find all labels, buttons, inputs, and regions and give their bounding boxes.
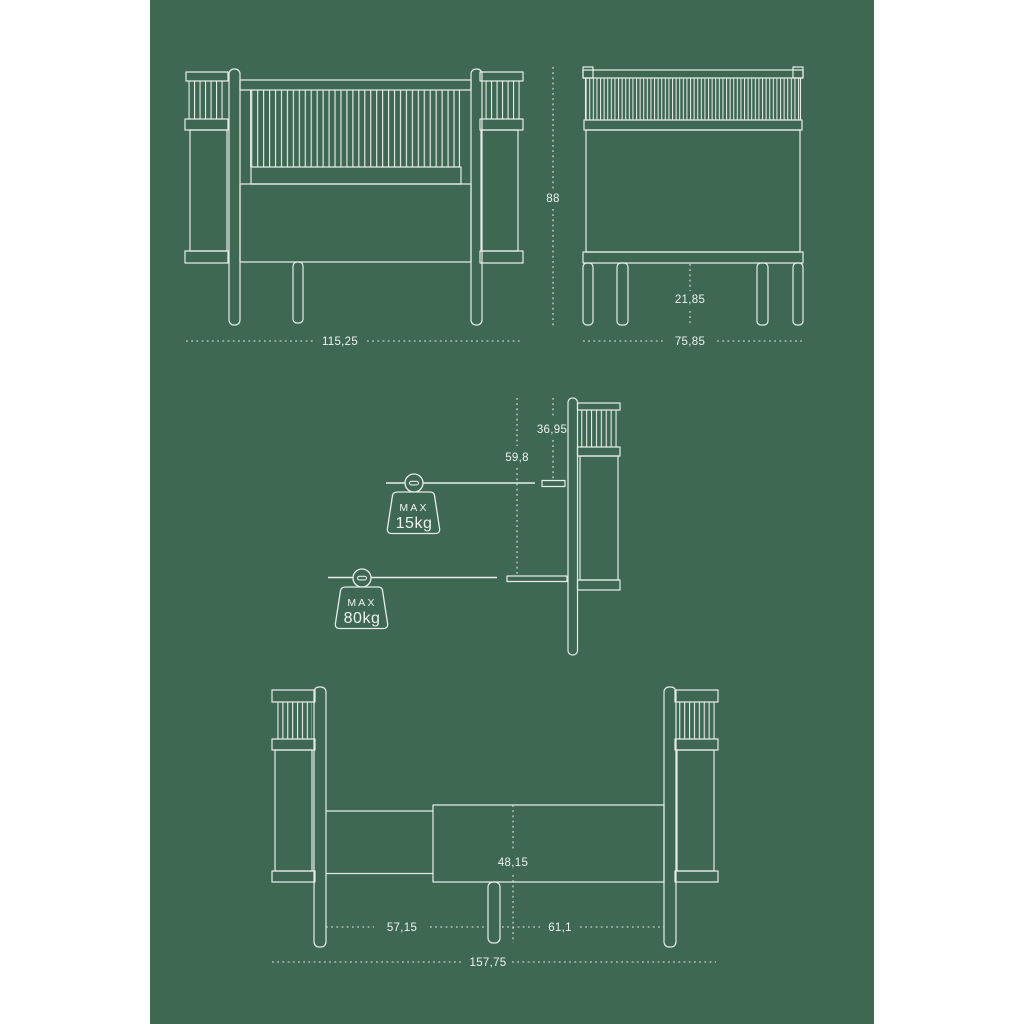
left-end-panel [185,72,228,263]
side-right-post-cap [793,67,803,78]
junior-total-width-label: 157,75 [470,957,507,969]
side-leg-1 [583,263,593,325]
end-panel-slats [677,702,715,739]
end-panel-slats [274,702,312,739]
weight-hook-ring [353,569,371,587]
profile-post [568,398,578,655]
junior-left-post [314,687,326,947]
underbed-clearance-label: 21,85 [675,294,705,306]
max-15kg-prefix: MAX [399,502,428,514]
junior-total-width-dimension: 157,75 [272,957,716,969]
dimension-poster: 115,25 88 21,85 75,85 [150,0,874,1024]
junior-right-section-label: 61,1 [548,922,572,934]
overall-height-label: 88 [546,193,559,205]
side-leg-3 [757,263,768,325]
junior-left-section-dimension: 57,15 [326,922,486,934]
left-end-panel [272,690,315,882]
side-panel [586,130,800,252]
side-width-dimension: 75,85 [583,336,803,348]
front-right-post [471,69,482,325]
max-80kg-prefix: MAX [347,597,376,609]
junior-bed-front-view [272,687,718,947]
drop-side-railing [240,80,471,184]
front-width-dimension: 115,25 [186,336,522,348]
side-left-post-cap [583,67,593,78]
junior-right-section-dimension: 61,1 [502,922,664,934]
side-top-rail [583,70,803,78]
right-end-panel [480,72,523,263]
mattress-low-dimension: 59,8 [505,398,529,575]
right-end-panel [675,690,718,882]
junior-center-leg [488,882,500,943]
side-width-label: 75,85 [675,336,705,348]
front-base-panel [240,184,471,262]
front-width-label: 115,25 [322,336,358,348]
technical-drawing: 115,25 88 21,85 75,85 [150,0,874,1024]
max-15kg-value: 15kg [396,515,433,532]
upper-mattress-bracket [542,481,565,487]
side-mid-rail [584,120,802,130]
front-left-post [229,69,240,325]
mattress-high-label: 36,95 [537,424,567,436]
profile-slats [580,410,618,447]
side-slats [585,78,801,120]
junior-base-box [433,805,664,882]
side-leg-2 [617,263,628,325]
mattress-low-label: 59,8 [505,452,529,464]
page-background: { "colors": { "page_background": "#fffff… [0,0,1024,1024]
side-leg-4 [793,263,803,325]
weight-hook-ring [405,474,423,492]
railing-slats [250,90,460,167]
mattress-high-dimension: 36,95 [537,398,567,479]
crib-front-view [185,69,523,325]
max-80kg-value: 80kg [344,610,381,627]
underbed-clearance-dimension: 21,85 [675,264,705,323]
overall-height-dimension: 88 [546,67,559,327]
junior-right-post [664,687,676,947]
end-panel-slats [482,81,521,119]
end-panel-slats [188,81,227,119]
front-center-leg [293,262,303,323]
crib-side-view [583,67,803,325]
profile-panel [580,456,618,580]
side-bottom-rail [583,252,803,263]
junior-base-height-label: 48,15 [498,857,528,869]
junior-left-section-label: 57,15 [387,922,417,934]
lower-mattress-shelf [507,576,567,582]
junior-base-height-dimension: 48,15 [498,805,528,943]
